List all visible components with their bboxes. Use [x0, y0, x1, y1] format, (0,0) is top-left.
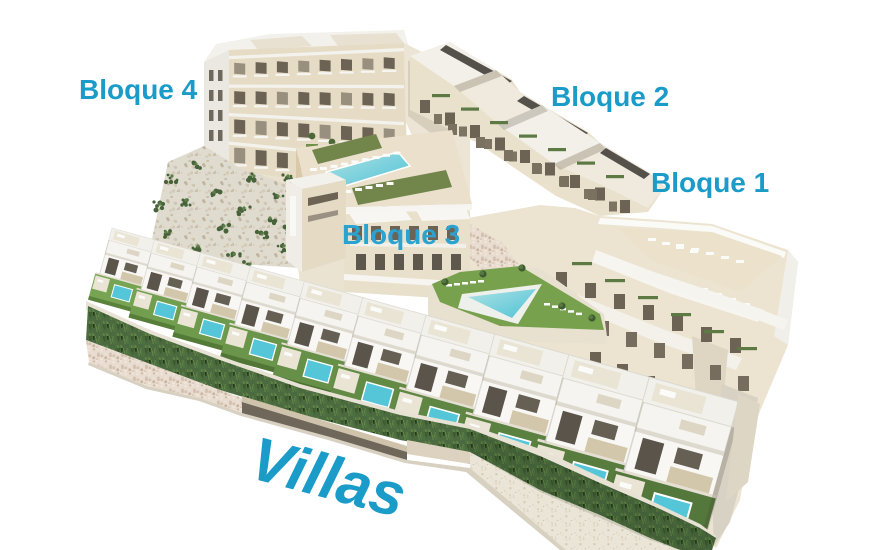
svg-text:Bloque 2: Bloque 2: [551, 81, 669, 112]
svg-text:Bloque 1: Bloque 1: [651, 167, 769, 198]
svg-text:Bloque 4: Bloque 4: [79, 74, 198, 105]
svg-text:Bloque 3: Bloque 3: [342, 219, 460, 250]
